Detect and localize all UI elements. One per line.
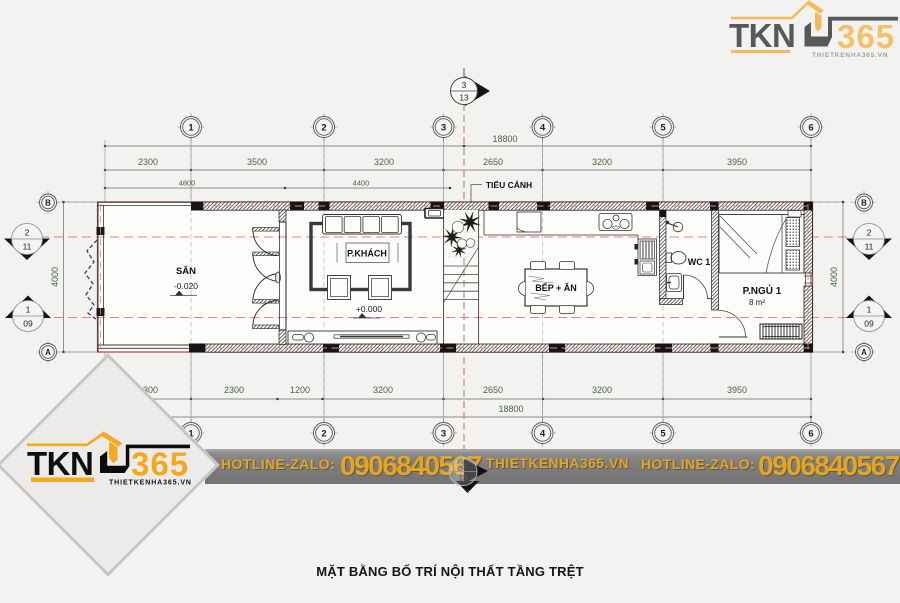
svg-text:3500: 3500 [247,157,267,167]
svg-text:3: 3 [441,122,446,133]
svg-text:6: 6 [808,122,813,133]
svg-text:3200: 3200 [592,157,612,167]
svg-text:1: 1 [188,122,194,133]
svg-text:18800: 18800 [498,404,523,414]
svg-text:B: B [45,198,51,207]
svg-text:WC 1: WC 1 [688,257,711,267]
svg-text:3950: 3950 [727,385,747,395]
svg-text:2650: 2650 [483,385,503,395]
svg-text:3: 3 [441,428,446,439]
svg-text:TKN: TKN [27,445,93,482]
svg-text:THIETKENHA365.VN: THIETKENHA365.VN [812,52,888,59]
svg-text:4800: 4800 [179,179,196,188]
svg-text:11: 11 [23,242,32,252]
svg-text:4: 4 [540,122,546,133]
svg-text:B: B [861,198,867,207]
svg-text:1: 1 [26,305,31,315]
svg-text:5: 5 [660,428,666,439]
svg-text:2: 2 [25,228,30,238]
svg-text:2: 2 [321,122,326,133]
svg-text:A: A [45,348,51,357]
svg-text:365: 365 [131,446,189,483]
svg-text:2: 2 [321,428,326,439]
svg-text:1: 1 [867,305,872,315]
svg-text:1200: 1200 [290,385,310,395]
svg-text:2300: 2300 [224,385,244,395]
svg-text:3200: 3200 [592,385,612,395]
svg-text:3200: 3200 [373,385,393,395]
svg-text:2300: 2300 [138,157,158,167]
svg-text:SÂN: SÂN [176,265,196,277]
svg-text:4000: 4000 [50,267,60,287]
svg-text:5: 5 [660,122,666,133]
svg-text:P.NGỦ 1: P.NGỦ 1 [743,284,782,297]
svg-text:11: 11 [865,242,874,252]
svg-text:2: 2 [867,228,872,238]
svg-text:4400: 4400 [353,179,370,188]
svg-text:4000: 4000 [829,267,839,287]
svg-text:A: A [861,348,867,357]
svg-text:TKN: TKN [729,17,795,54]
svg-text:13: 13 [460,94,469,103]
svg-text:365: 365 [837,18,895,55]
svg-text:-0.020: -0.020 [174,281,198,291]
svg-text:BẾP + ĂN: BẾP + ĂN [535,283,577,293]
svg-text:09: 09 [23,319,33,329]
svg-text:2650: 2650 [483,157,503,167]
svg-text:6: 6 [808,428,813,439]
svg-text:3950: 3950 [727,157,747,167]
svg-text:8 m²: 8 m² [749,298,765,307]
svg-text:3: 3 [462,81,467,90]
svg-text:TIỂU CẢNH: TIỂU CẢNH [486,179,532,190]
svg-text:4: 4 [540,428,546,439]
svg-text:18800: 18800 [492,134,517,144]
svg-text:09: 09 [864,319,874,329]
svg-text:THIETKENHA365.VN: THIETKENHA365.VN [109,480,192,487]
svg-text:3200: 3200 [374,157,394,167]
svg-text:+0.000: +0.000 [356,304,383,314]
svg-text:P.KHÁCH: P.KHÁCH [347,249,387,259]
